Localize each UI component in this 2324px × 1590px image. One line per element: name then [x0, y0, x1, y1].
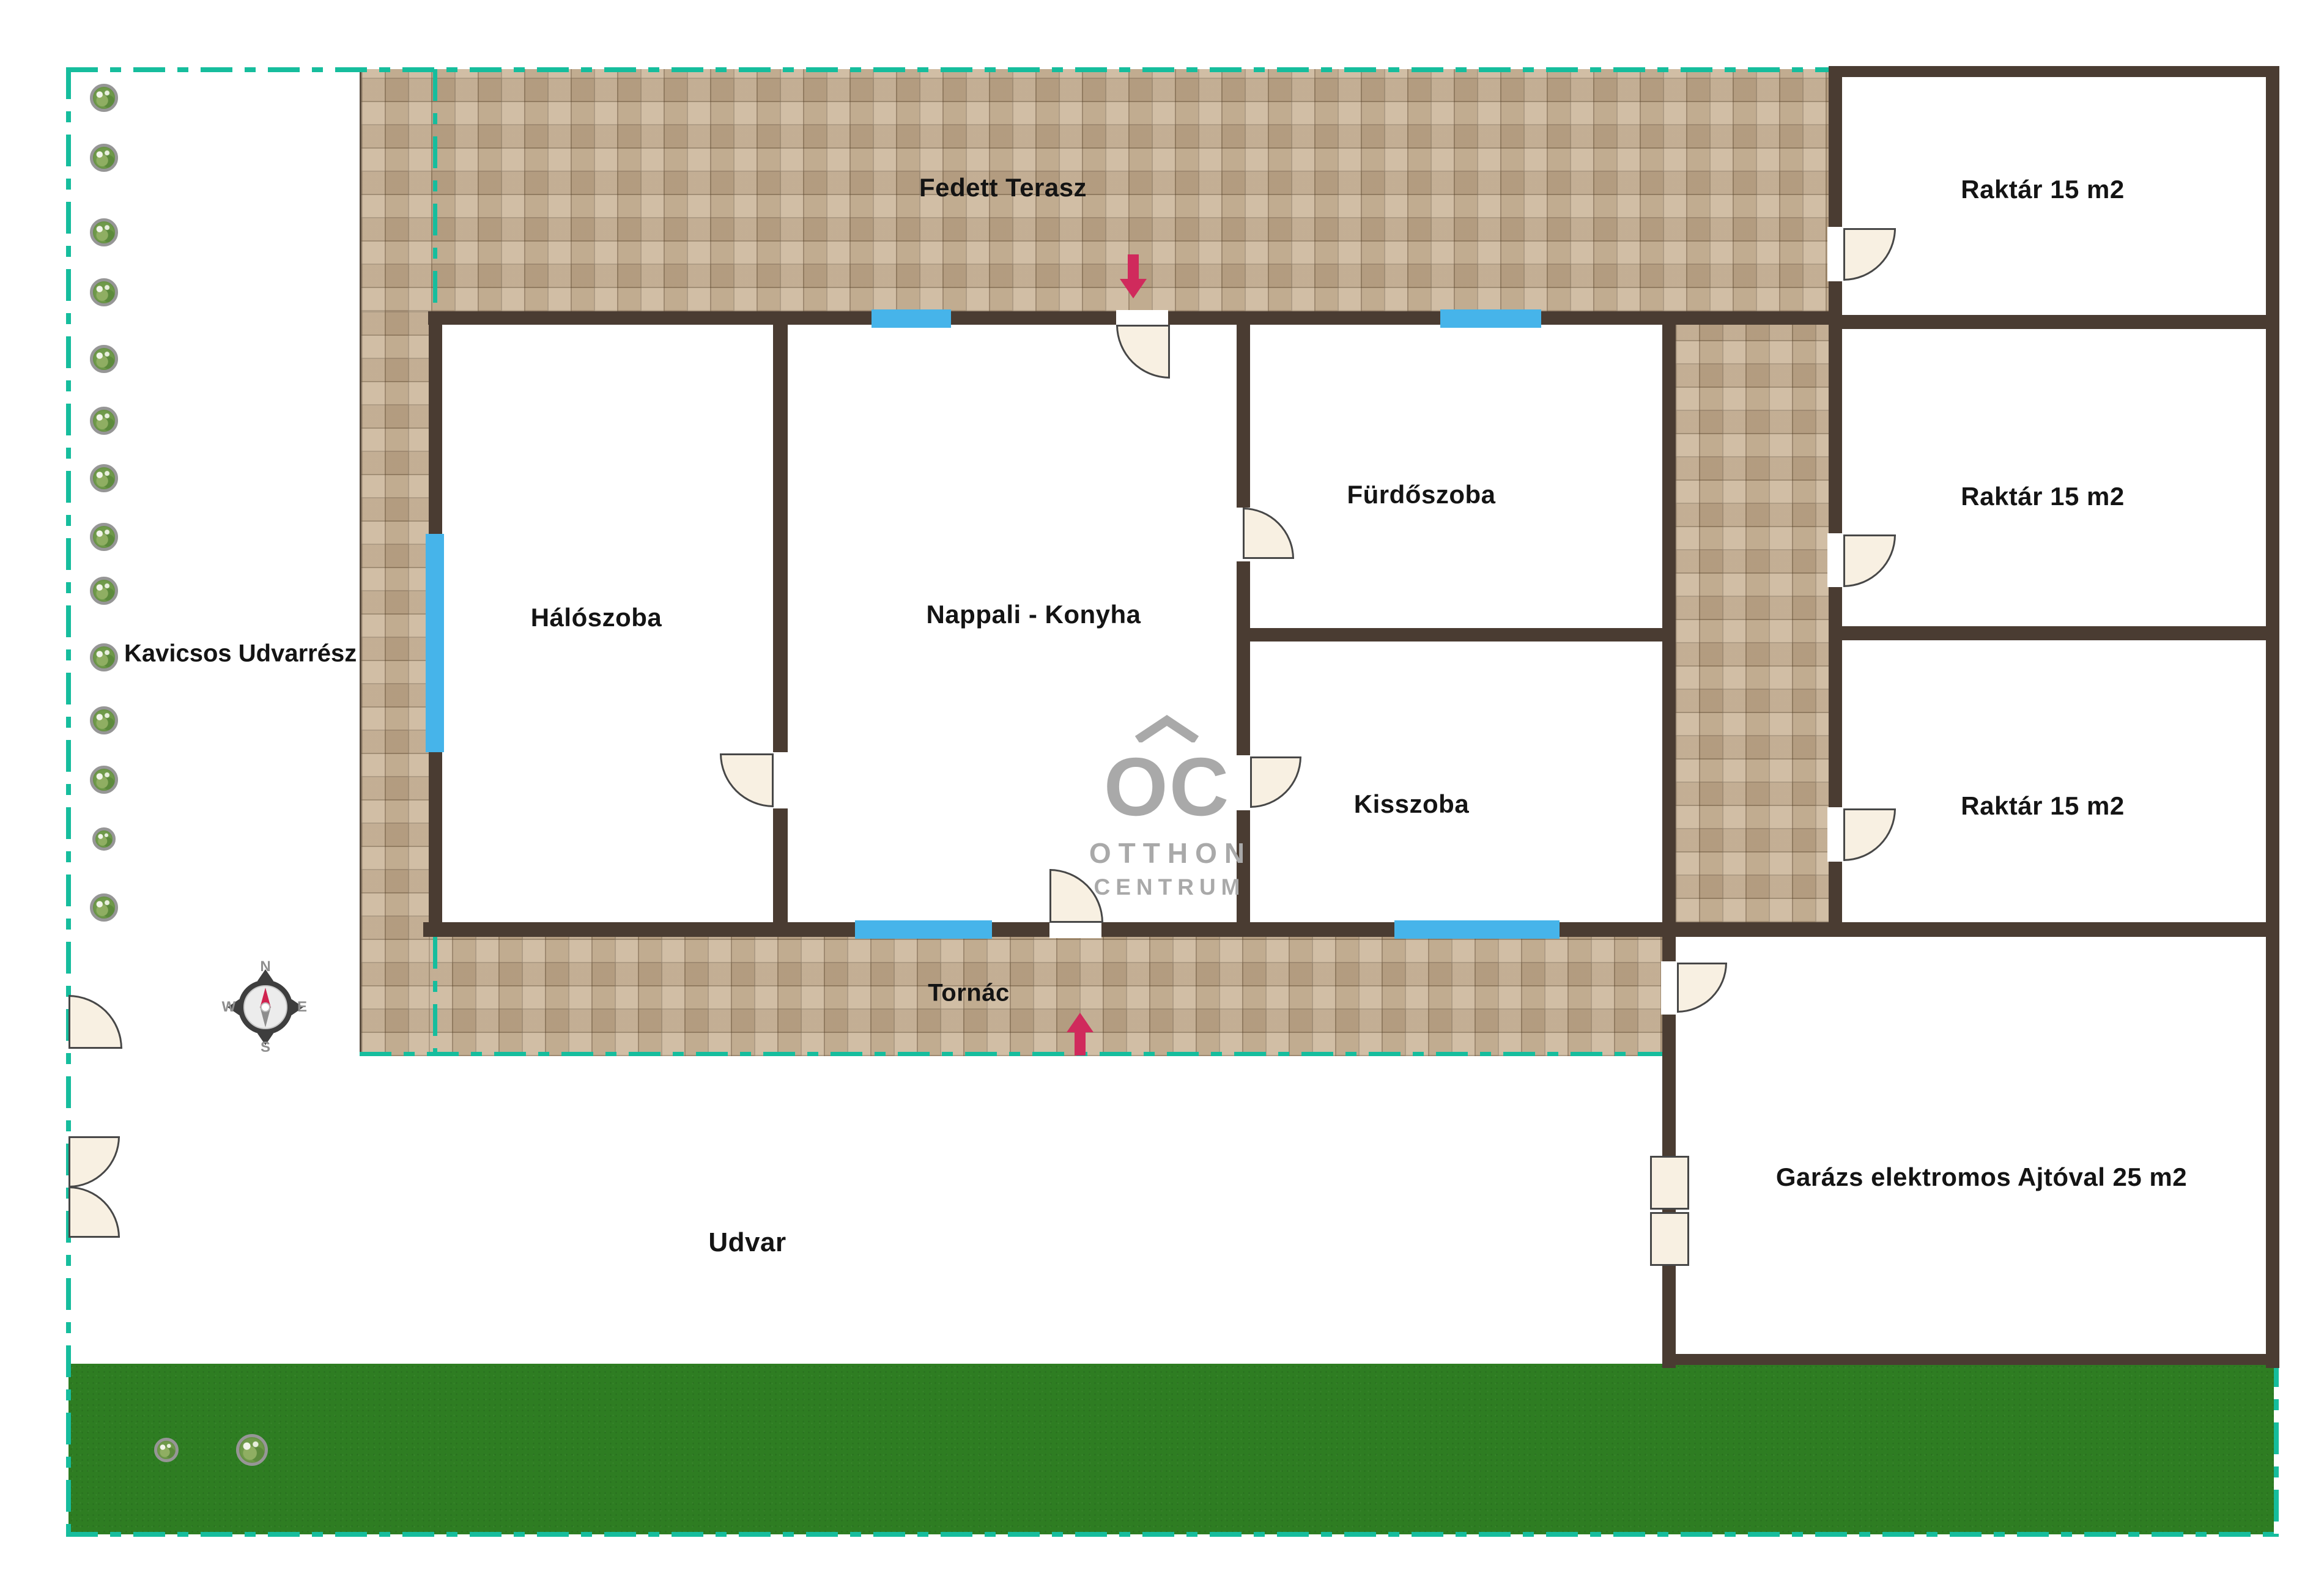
- compass-label-w: W: [222, 999, 236, 1016]
- opening-storage2: [1827, 533, 1843, 587]
- label-yard: Udvar: [708, 1227, 786, 1258]
- opening-main-entrance: [1049, 921, 1101, 938]
- arrow-head-down-icon: [1120, 279, 1147, 298]
- wall-house-bottom: [423, 922, 2279, 937]
- door-bathroom: [1243, 508, 1294, 559]
- boundary-line-inner-terrace: [433, 69, 437, 311]
- wall-bath-smallroom: [1237, 628, 1662, 642]
- label-small-room: Kisszoba: [1354, 789, 1469, 819]
- opening-living-terrace: [1116, 310, 1168, 326]
- arrow-shaft: [1128, 254, 1139, 280]
- logo-monogram: OC: [1063, 745, 1271, 828]
- compass-label-n: N: [260, 958, 270, 975]
- door-bedroom: [720, 753, 774, 807]
- opening-storage3: [1827, 807, 1843, 862]
- window-living-top: [871, 309, 951, 328]
- compass-label-s: S: [261, 1039, 270, 1056]
- gate-double-bottom-leaf: [68, 1186, 120, 1238]
- label-covered-terrace: Fedett Terasz: [919, 173, 1087, 202]
- floor-plan: N E S W OC OTTHON CENTRUM Fedett Terasz …: [0, 0, 2324, 1590]
- plant-pot-icon: [236, 1434, 268, 1466]
- window-smallroom-bottom: [1394, 920, 1560, 939]
- opening-storage1: [1827, 227, 1843, 281]
- boundary-line-porch-bottom: [360, 1052, 1662, 1056]
- door-storage1: [1843, 228, 1896, 281]
- logo-line1: OTTHON: [1063, 837, 1271, 870]
- plant-pot-icon: [90, 766, 118, 794]
- label-porch: Tornác: [928, 980, 1009, 1007]
- porch-paving: [429, 937, 1662, 1056]
- wall-outer-right: [2266, 66, 2279, 1368]
- label-garage: Garázs elektromos Ajtóval 25 m2: [1776, 1163, 2187, 1192]
- right-paving-strip: [1676, 311, 1829, 922]
- gate-single: [68, 995, 122, 1049]
- plant-pot-icon: [154, 1438, 179, 1462]
- arrow-shaft: [1075, 1032, 1086, 1056]
- gate-double-top-leaf: [68, 1136, 120, 1188]
- terrace-paving: [360, 69, 1830, 311]
- wall-storage-divider-1: [1842, 315, 2266, 329]
- opening-porch-garage: [1661, 961, 1677, 1015]
- label-bathroom: Fürdőszoba: [1347, 480, 1496, 509]
- plant-pot-icon: [90, 643, 118, 671]
- grass-area: [68, 1364, 2274, 1534]
- wall-storage-left: [1829, 66, 1842, 937]
- label-gravel-yard: Kavicsos Udvarrész: [124, 640, 357, 668]
- wall-bedroom-living: [773, 325, 788, 922]
- arrow-head-up-icon: [1067, 1013, 1094, 1032]
- garage-door-leaf-top: [1650, 1156, 1689, 1210]
- window-living-bottom: [855, 920, 992, 939]
- window-bedroom-left: [426, 534, 444, 752]
- logo-chevron-icon: [1130, 714, 1204, 742]
- plant-pot-icon: [90, 218, 118, 246]
- door-porch-garage: [1677, 963, 1727, 1013]
- wall-storage-top: [1829, 66, 2279, 77]
- plant-pot-icon: [90, 278, 118, 306]
- opening-bedroom: [773, 752, 788, 808]
- plant-pot-icon: [90, 345, 118, 373]
- plant-pot-icon: [90, 464, 118, 492]
- label-storage-3: Raktár 15 m2: [1961, 791, 2125, 821]
- plant-pot-icon: [90, 706, 118, 734]
- window-bathroom-top: [1440, 309, 1541, 328]
- plant-pot-icon: [90, 577, 118, 605]
- label-living-kitchen: Nappali - Konyha: [926, 600, 1141, 629]
- left-paving-strip: [360, 311, 431, 1056]
- boundary-line-left: [66, 67, 71, 1536]
- brand-logo: OC OTTHON CENTRUM: [1063, 714, 1271, 900]
- boundary-line-inner-porch: [433, 937, 437, 1056]
- boundary-line-top: [66, 67, 1829, 72]
- wall-storage-divider-2: [1842, 626, 2266, 640]
- label-storage-2: Raktár 15 m2: [1961, 482, 2125, 511]
- door-living-terrace: [1116, 325, 1170, 379]
- label-storage-1: Raktár 15 m2: [1961, 175, 2125, 204]
- plant-pot-icon: [90, 407, 118, 435]
- garage-door-leaf-bottom: [1650, 1212, 1689, 1266]
- compass-label-e: E: [297, 999, 307, 1016]
- logo-line2: CENTRUM: [1063, 875, 1271, 900]
- plant-pot-icon: [90, 144, 118, 172]
- plant-pot-icon: [90, 523, 118, 551]
- boundary-line-right: [2274, 1355, 2279, 1537]
- door-storage3: [1843, 808, 1896, 861]
- label-bedroom: Hálószoba: [531, 603, 662, 632]
- plant-pot-icon: [90, 84, 118, 112]
- door-storage2: [1843, 534, 1896, 587]
- plant-pot-icon: [92, 827, 116, 851]
- boundary-line-bottom: [66, 1532, 2280, 1537]
- plant-pot-icon: [90, 893, 118, 922]
- wall-garage-bottom: [1662, 1354, 2279, 1365]
